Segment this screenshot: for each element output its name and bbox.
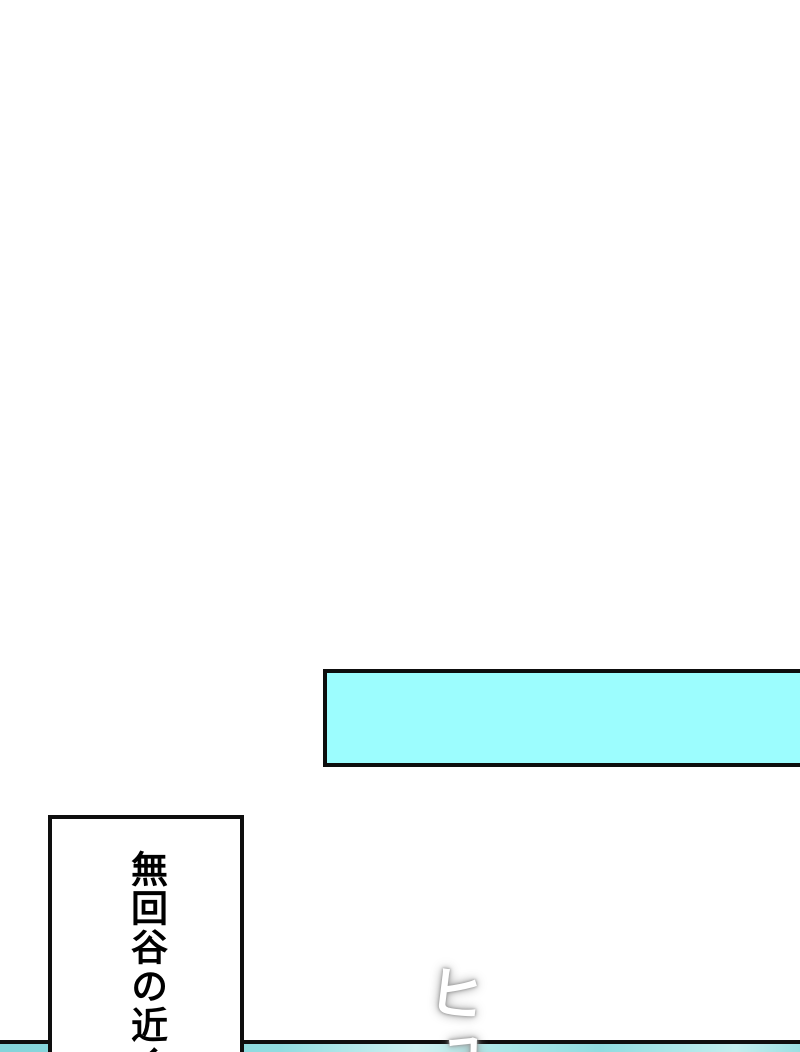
sfx-char-2: ュ — [435, 1019, 493, 1052]
sfx-text: ヒ ュ — [428, 968, 488, 1052]
scene-panel-top — [323, 669, 800, 767]
speech-box: 無回谷の近く — [48, 815, 244, 1052]
speech-text: 無回谷の近く — [128, 850, 165, 1052]
manga-page: ヒ ュ 無回谷の近く — [0, 0, 800, 1052]
